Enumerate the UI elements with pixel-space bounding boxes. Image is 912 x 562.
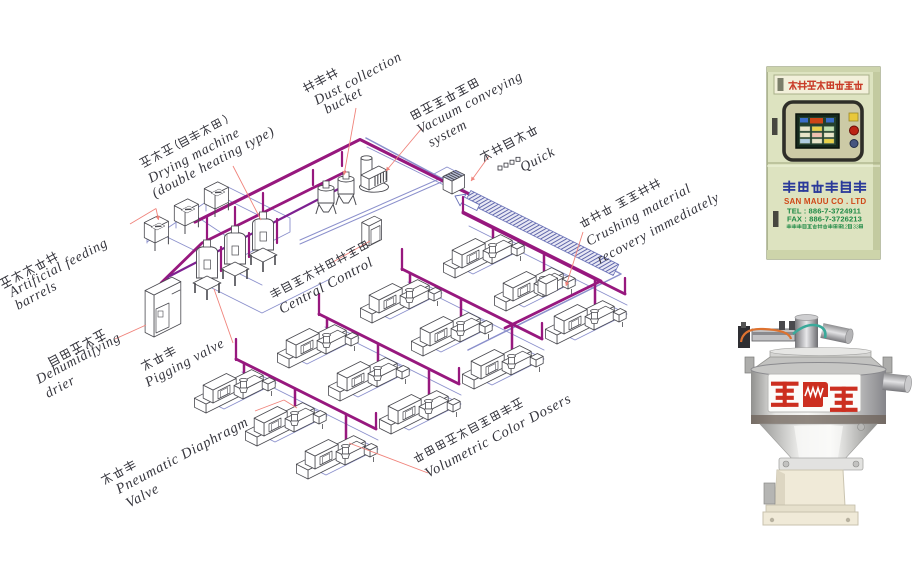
- svg-text:12: 12: [842, 225, 848, 231]
- svg-text:SAN MAUU CO . LTD: SAN MAUU CO . LTD: [784, 197, 866, 206]
- svg-text:FAX : 886-7-3726213: FAX : 886-7-3726213: [787, 215, 862, 224]
- svg-text:33: 33: [853, 225, 859, 231]
